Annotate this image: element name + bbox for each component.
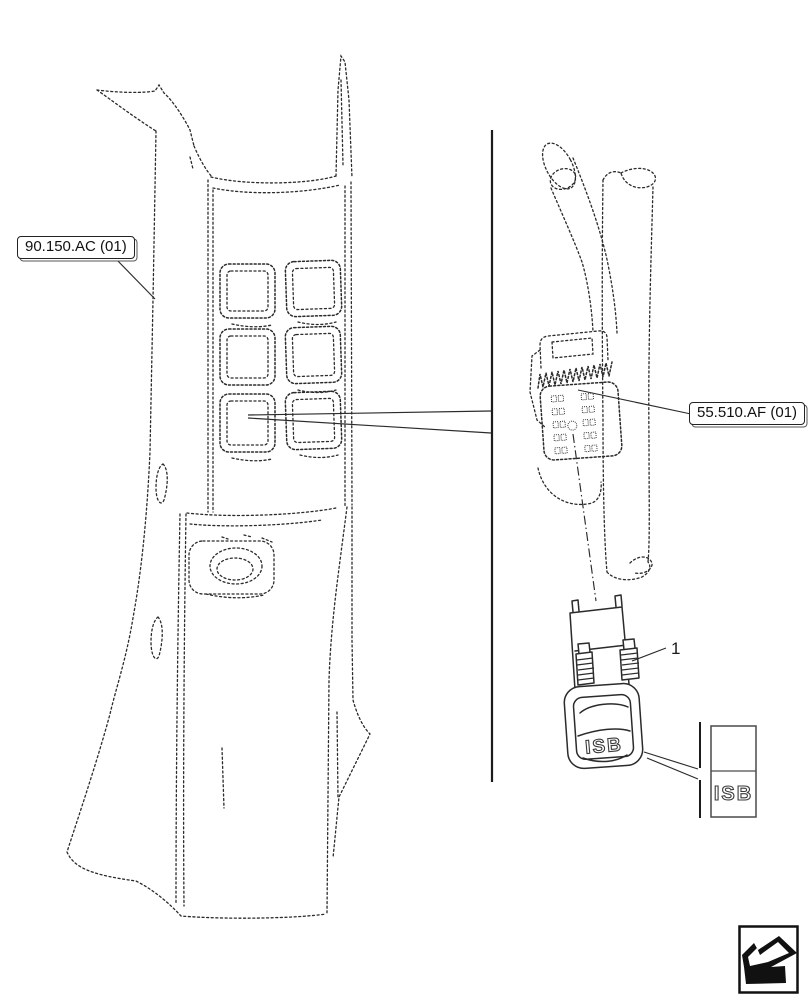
- pillar-trim-panel: [67, 56, 370, 918]
- legend-pointer: [644, 722, 700, 818]
- legend-text: ISB: [714, 783, 753, 805]
- reference-label-90-150-AC[interactable]: 90.150.AC (01): [17, 236, 135, 259]
- harness-connector: [530, 331, 622, 601]
- callout-1-number[interactable]: 1: [671, 639, 680, 658]
- return-arrow-icon[interactable]: [740, 927, 798, 993]
- callout-1[interactable]: 1: [632, 639, 680, 661]
- right-ref-leader: [578, 390, 691, 414]
- assembly-axis-line: [573, 434, 596, 601]
- wire-harness: [536, 138, 656, 580]
- diagram-line-art: ISB 1 ISB: [0, 0, 812, 1000]
- parts-diagram-page: ISB 1 ISB 90.150.AC (01) 55.510.AF (01): [0, 0, 812, 1000]
- connector-pins: [551, 393, 597, 454]
- reference-label-55-510-AF[interactable]: 55.510.AF (01): [689, 402, 805, 425]
- switch-face-text: ISB: [584, 734, 623, 758]
- handle-recess: [189, 535, 274, 598]
- left-ref-leader: [114, 257, 155, 299]
- isb-switch: ISB: [563, 595, 644, 769]
- switch-location-pointer: [248, 411, 491, 433]
- legend-box: ISB: [711, 726, 756, 817]
- switch-openings: [220, 260, 342, 461]
